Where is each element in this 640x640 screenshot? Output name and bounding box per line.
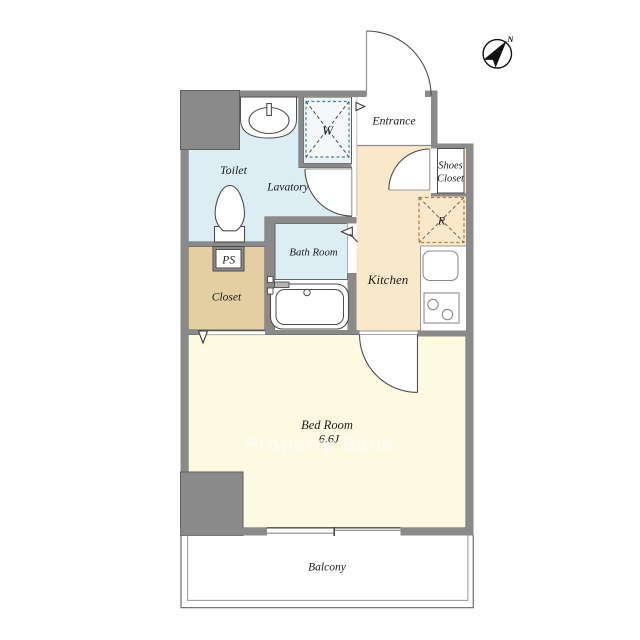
svg-text:W: W bbox=[322, 123, 334, 138]
svg-text:Entrance: Entrance bbox=[371, 114, 415, 128]
svg-text:Shoes: Shoes bbox=[438, 161, 463, 172]
svg-text:Property Bank: Property Bank bbox=[244, 434, 394, 456]
svg-text:Closet: Closet bbox=[437, 174, 465, 185]
svg-text:PS: PS bbox=[221, 255, 235, 267]
svg-text:R: R bbox=[437, 214, 446, 228]
svg-text:N: N bbox=[506, 34, 514, 44]
svg-text:Kitchen: Kitchen bbox=[367, 272, 408, 287]
svg-text:Toilet: Toilet bbox=[220, 163, 248, 177]
svg-text:Closet: Closet bbox=[212, 292, 242, 304]
svg-text:Bath Room: Bath Room bbox=[289, 247, 337, 259]
svg-text:Lavatory: Lavatory bbox=[266, 182, 309, 194]
svg-text:Bed Room: Bed Room bbox=[301, 418, 353, 432]
svg-text:Balcony: Balcony bbox=[308, 562, 347, 574]
